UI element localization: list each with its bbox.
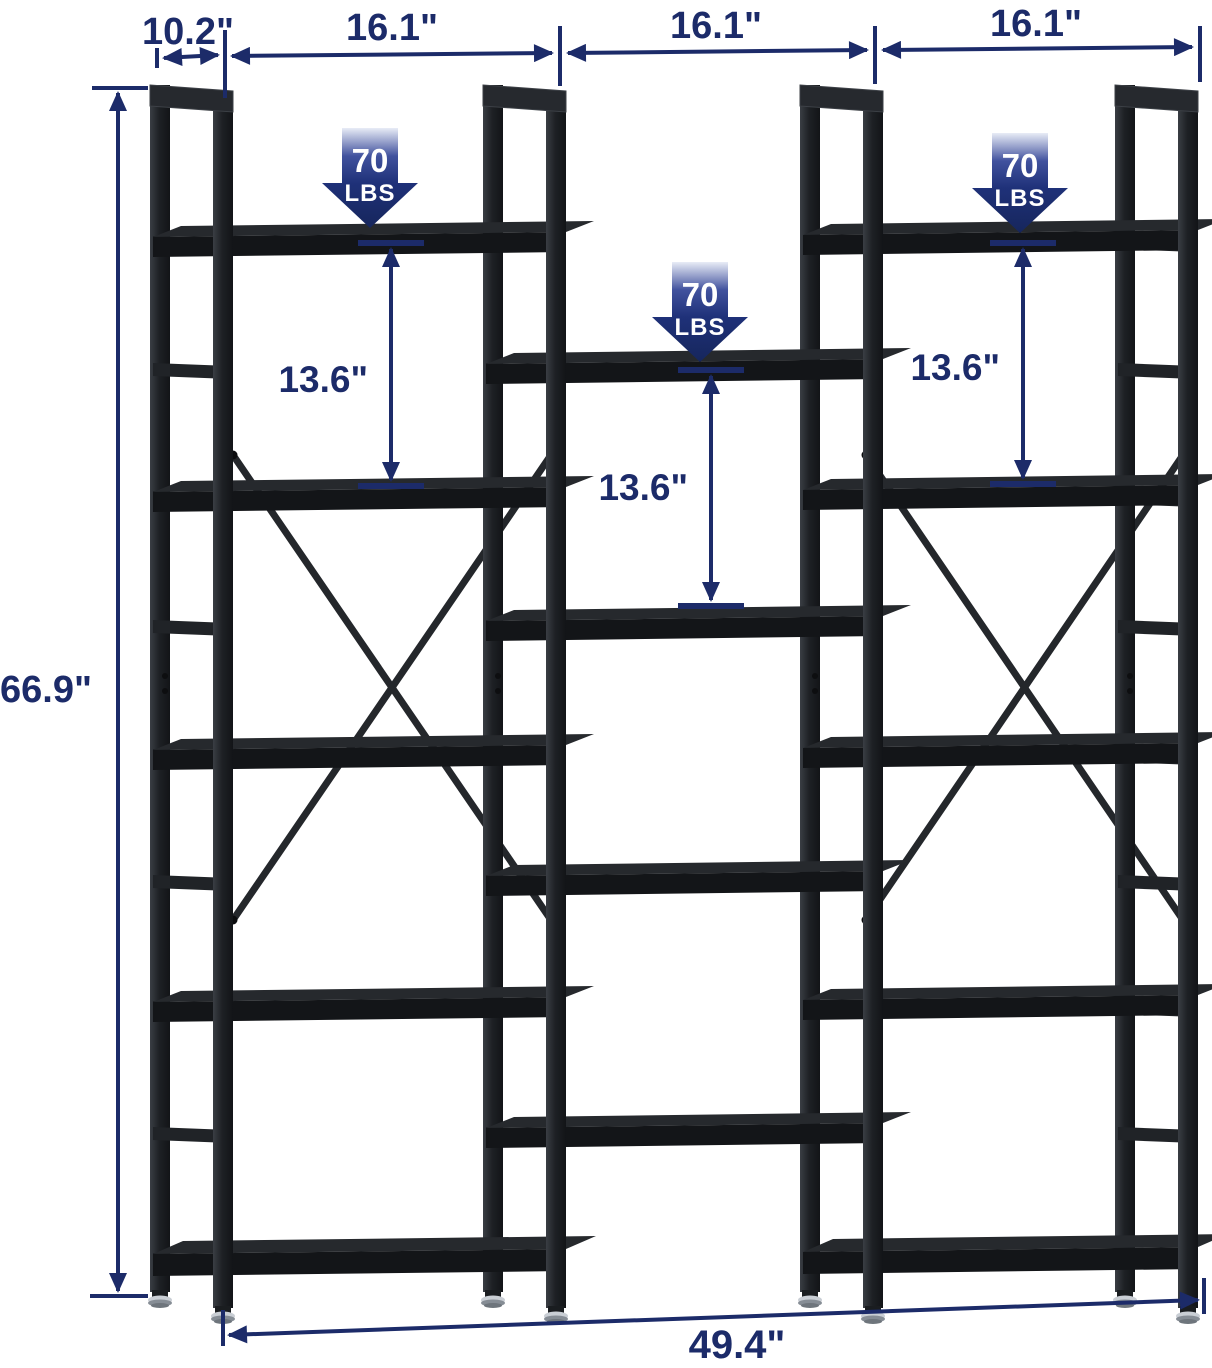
load-unit: LBS (345, 180, 396, 207)
height-label: 66.9" (0, 669, 92, 711)
x-brace-right-unit (862, 451, 1188, 925)
section-width-label: 16.1" (346, 7, 438, 49)
load-value: 70 (1002, 147, 1039, 184)
shelf-spacing-label: 13.6" (598, 467, 688, 508)
load-unit: LBS (675, 314, 726, 341)
bookshelf-dimension-diagram: 70 LBS 70 LBS 70 LBS 10.2" 16.1" (0, 0, 1212, 1368)
dimension-section-width-3: 16.1" (883, 3, 1200, 82)
dimension-shelf-spacing-left: 13.6" (278, 243, 424, 486)
load-value: 70 (352, 142, 389, 179)
shelf-spacing-label: 13.6" (278, 359, 368, 400)
section-width-label: 16.1" (990, 3, 1082, 45)
dimension-shelf-spacing-right: 13.6" (910, 243, 1056, 484)
depth-label: 10.2" (142, 11, 234, 53)
dimension-shelf-spacing-middle: 13.6" (598, 370, 744, 606)
total-width-label: 49.4" (689, 1323, 786, 1367)
load-unit: LBS (995, 185, 1046, 212)
dimension-total-width: 49.4" (223, 1278, 1204, 1367)
load-value: 70 (682, 276, 719, 313)
load-capacity-badge-right: 70 LBS (972, 133, 1068, 233)
dimension-section-width-1: 16.1" (232, 7, 560, 86)
section-width-label: 16.1" (670, 5, 762, 47)
diagram-page: 70 LBS 70 LBS 70 LBS 10.2" 16.1" (0, 0, 1212, 1368)
load-capacity-badge-middle: 70 LBS (652, 262, 748, 362)
shelf-spacing-label: 13.6" (910, 347, 1000, 388)
load-capacity-badge-left: 70 LBS (322, 128, 418, 228)
x-brace-left-unit (229, 451, 556, 925)
post-joint-bolts (162, 673, 1133, 694)
dimension-section-width-2: 16.1" (568, 5, 875, 84)
dimension-height: 66.9" (0, 88, 148, 1296)
